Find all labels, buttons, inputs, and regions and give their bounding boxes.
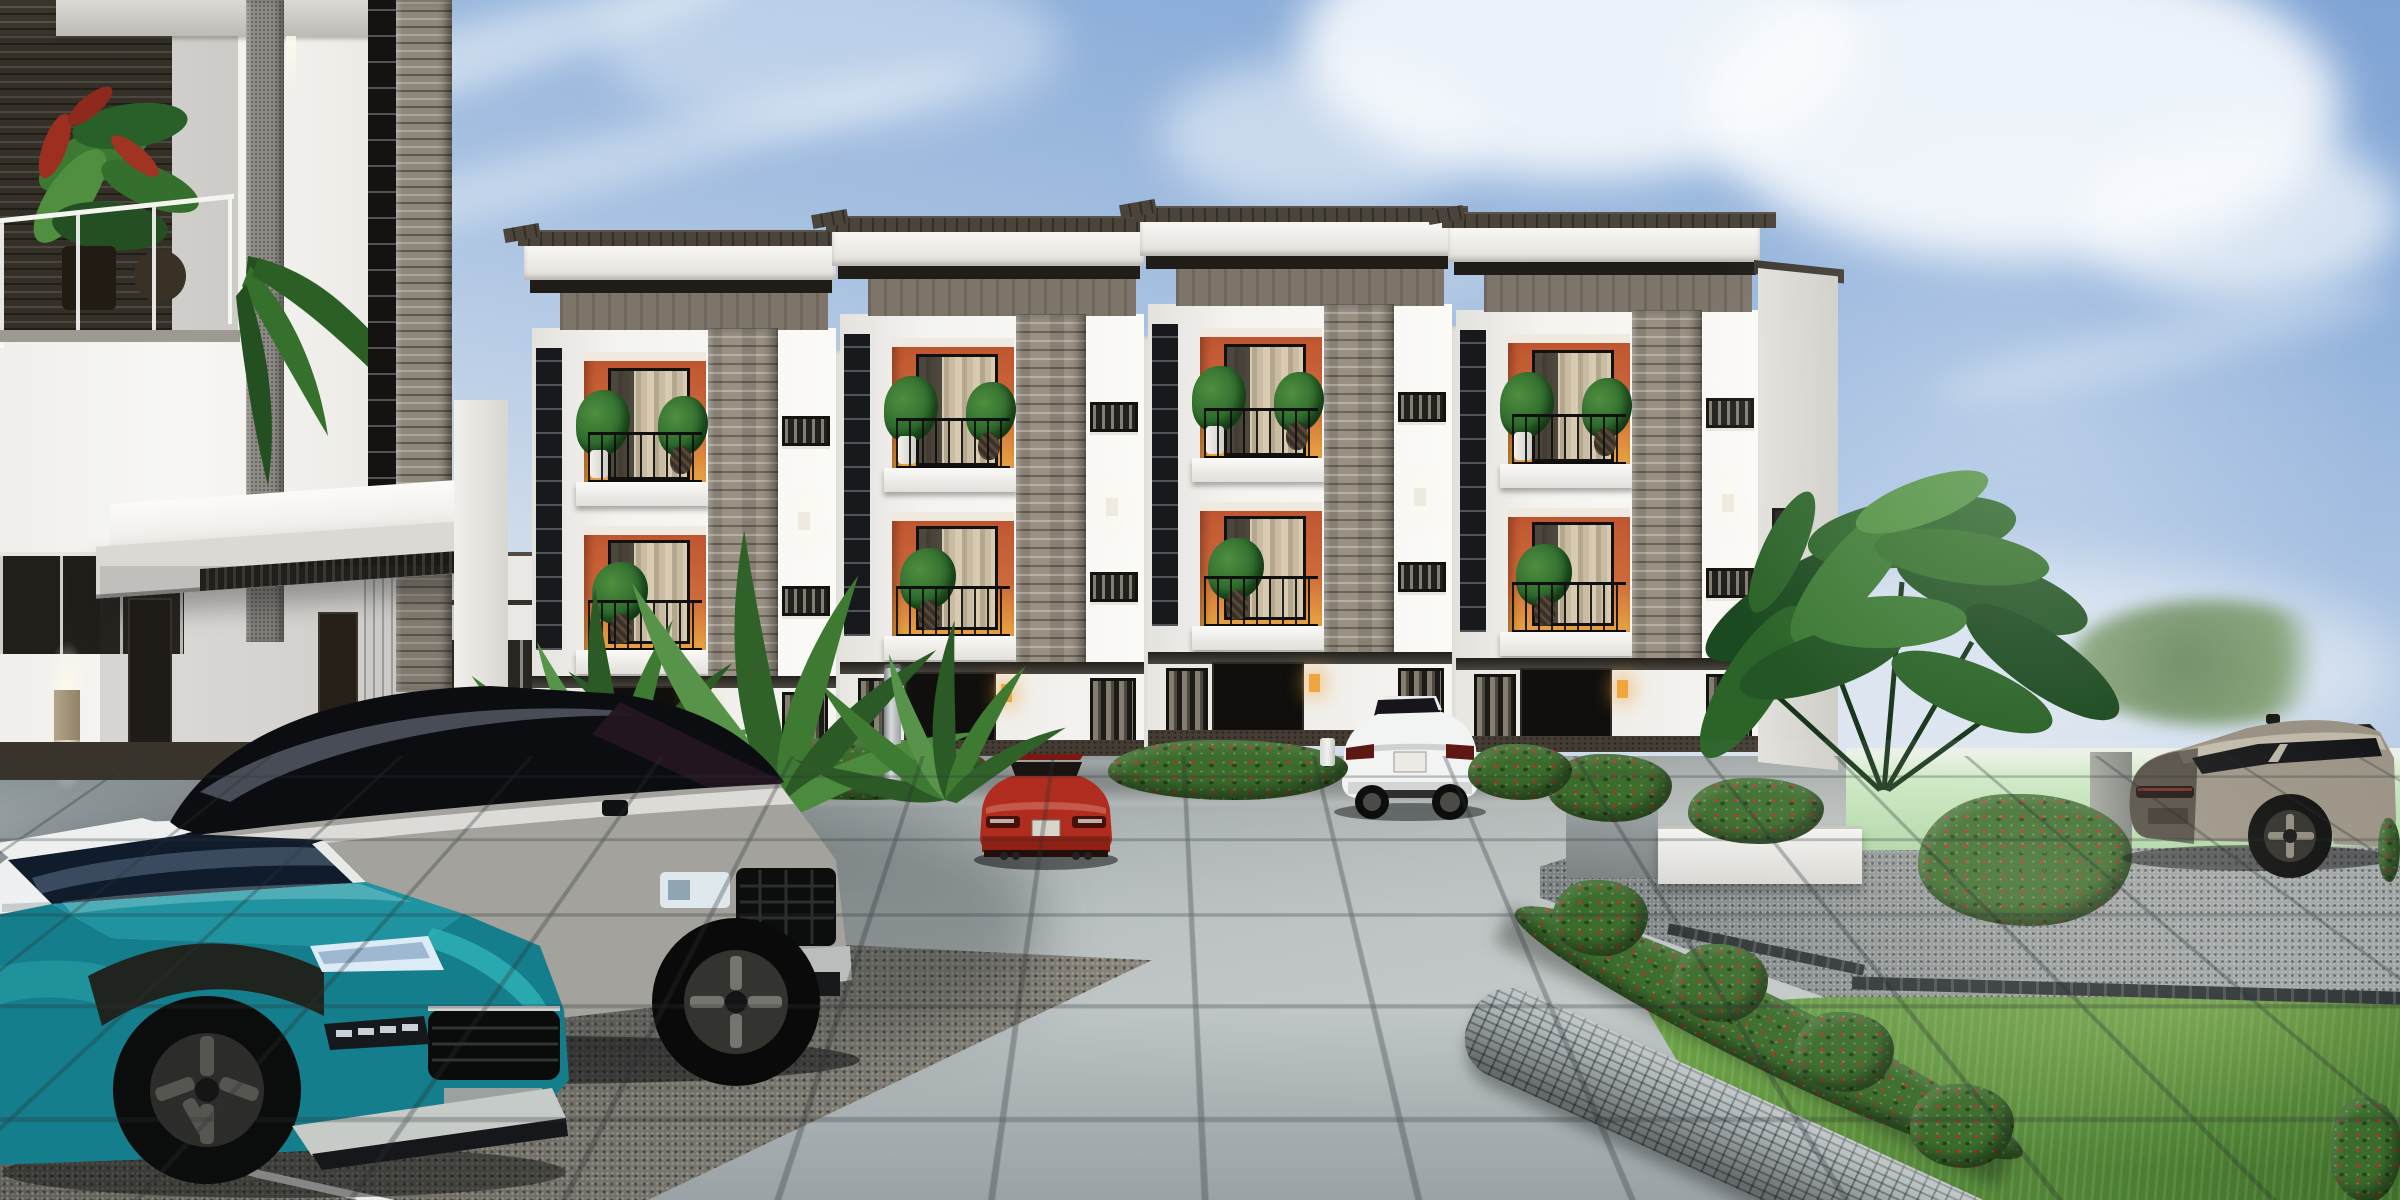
- balcony-slab: [1192, 626, 1326, 650]
- balcony-slab: [1192, 458, 1326, 482]
- balcony-soffit: [892, 338, 1014, 347]
- ground-window: [1166, 668, 1208, 738]
- tropical-plant: [1672, 462, 2112, 792]
- sconce-glow: [46, 640, 88, 692]
- ground-window: [1090, 678, 1136, 746]
- front-hedge: [1108, 740, 1348, 800]
- balcony-railing: [1512, 582, 1626, 632]
- roof-coping: [826, 216, 1160, 232]
- roof-coping: [1134, 206, 1468, 222]
- roof-fascia: [524, 246, 836, 280]
- roof-soffit: [56, 0, 372, 36]
- balcony-recess-3f: [584, 352, 706, 482]
- side-window: [1706, 398, 1754, 428]
- wall-sconce: [1414, 488, 1426, 506]
- stairwell-glazing: [1152, 324, 1178, 626]
- roof-recess-wall: [1484, 275, 1752, 312]
- balcony-railing: [1204, 576, 1318, 626]
- roof-shadow-band: [838, 266, 1140, 279]
- balcony-railing: [1512, 414, 1626, 464]
- balcony-recess-2f: [1200, 502, 1322, 626]
- entry-sconce: [1617, 680, 1628, 698]
- flower-bush: [2330, 1098, 2400, 1200]
- roof-shadow-band: [1454, 262, 1756, 275]
- balcony-soffit: [1508, 508, 1630, 517]
- balcony-soffit: [1200, 328, 1322, 337]
- roof-fascia: [1448, 228, 1760, 262]
- side-window: [1090, 402, 1138, 432]
- side-window: [1398, 562, 1446, 592]
- balcony-railing: [896, 418, 1010, 468]
- front-hedge: [1468, 744, 1572, 800]
- roof-coping: [1442, 212, 1776, 228]
- side-window: [1398, 392, 1446, 422]
- entry-sconce: [1309, 674, 1320, 692]
- flower-bush: [2378, 818, 2400, 882]
- roof-shadow-band: [530, 280, 832, 293]
- roof-coping: [518, 230, 852, 246]
- bronze-suv: [2118, 698, 2400, 878]
- roof-fascia: [1140, 222, 1452, 256]
- balcony-soffit: [1200, 502, 1322, 511]
- wall-sconce: [54, 690, 80, 742]
- balcony-slab: [884, 468, 1018, 492]
- balcony-recess-3f: [1200, 328, 1322, 458]
- side-window: [782, 416, 830, 446]
- balcony-railing: [1204, 408, 1318, 458]
- scene: [0, 0, 2400, 1200]
- balcony-recess-3f: [1508, 334, 1630, 464]
- white-bollard: [1320, 738, 1335, 766]
- roof-recess-wall: [868, 279, 1136, 316]
- side-window: [1090, 572, 1138, 602]
- roof-recess-wall: [560, 293, 828, 330]
- flower-bush: [1672, 944, 1768, 1022]
- balcony-floor-edge: [0, 330, 240, 342]
- balcony-slab: [1500, 464, 1634, 488]
- balcony-soffit: [1508, 334, 1630, 343]
- white-suv: [1330, 690, 1490, 826]
- balcony-recess-3f: [892, 338, 1014, 468]
- flower-bush: [1552, 880, 1648, 956]
- flower-bush: [1794, 1012, 1894, 1092]
- balcony-slab: [1500, 632, 1634, 656]
- flower-bush: [1910, 1084, 2014, 1168]
- glazing-slot: [368, 0, 396, 505]
- license-plate: [1032, 820, 1060, 838]
- glass-balustrade: [0, 194, 234, 349]
- roof-recess-wall: [1176, 269, 1444, 306]
- teal-suv: [0, 818, 577, 1200]
- roof-shadow-band: [1146, 256, 1448, 269]
- balcony-railing: [588, 432, 702, 482]
- wall-sconce: [1106, 498, 1118, 516]
- balcony-soffit: [584, 352, 706, 361]
- balcony-slab: [576, 482, 710, 506]
- downlight-glow: [286, 36, 296, 86]
- roof-fascia: [832, 232, 1144, 266]
- flower-bush: [1918, 794, 2132, 926]
- balcony-recess-2f: [1508, 508, 1630, 632]
- stairwell-glazing: [1460, 330, 1486, 632]
